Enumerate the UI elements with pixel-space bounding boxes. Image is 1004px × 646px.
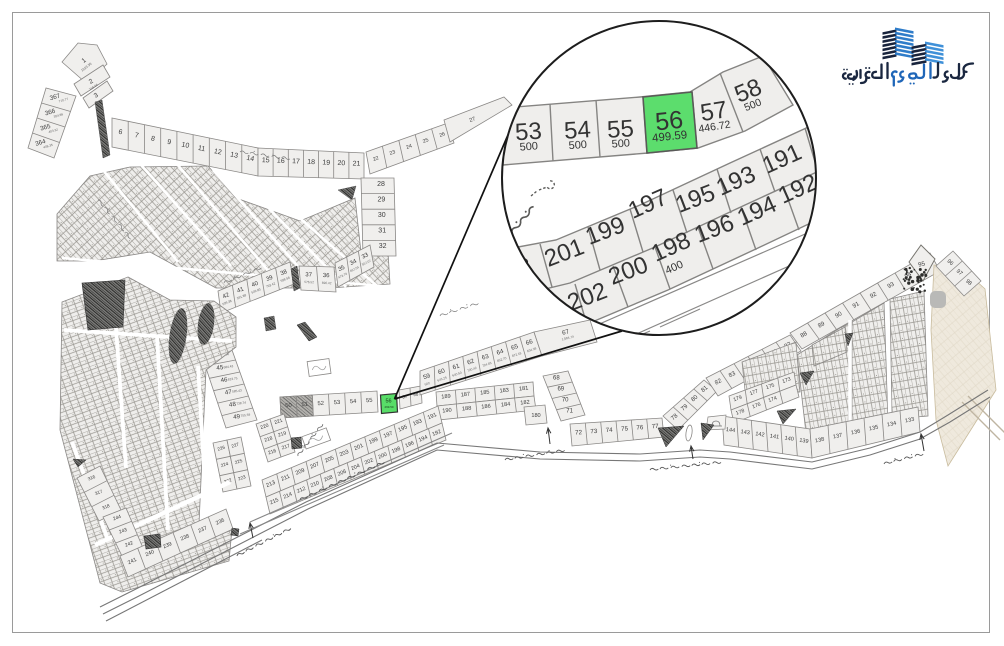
svg-text:28: 28: [377, 181, 385, 188]
svg-text:17: 17: [292, 158, 300, 165]
svg-text:74: 74: [606, 427, 614, 435]
svg-text:72: 72: [575, 429, 583, 437]
svg-text:56: 56: [385, 399, 391, 405]
svg-text:73: 73: [590, 428, 598, 436]
svg-text:696.42: 696.42: [322, 281, 332, 285]
svg-text:11: 11: [197, 145, 206, 153]
svg-text:20: 20: [337, 160, 345, 167]
svg-text:55: 55: [366, 398, 373, 404]
svg-text:19: 19: [322, 159, 330, 166]
svg-text:69: 69: [557, 387, 564, 393]
svg-text:184: 184: [501, 402, 511, 409]
svg-text:189: 189: [441, 394, 451, 401]
svg-text:143: 143: [740, 429, 750, 436]
svg-text:32: 32: [379, 243, 387, 250]
svg-text:186: 186: [481, 404, 491, 411]
svg-text:54: 54: [350, 399, 358, 405]
svg-text:188: 188: [462, 406, 472, 413]
svg-text:53: 53: [334, 400, 341, 406]
svg-text:50: 50: [285, 403, 292, 409]
svg-text:75: 75: [621, 425, 629, 433]
svg-text:15: 15: [262, 157, 270, 164]
svg-text:70: 70: [562, 398, 569, 404]
svg-text:500: 500: [568, 139, 587, 152]
svg-text:576.52: 576.52: [304, 280, 314, 284]
svg-text:185: 185: [480, 390, 490, 397]
svg-text:139: 139: [799, 438, 809, 445]
svg-text:181: 181: [519, 386, 529, 393]
svg-text:500: 500: [611, 137, 630, 150]
svg-text:76: 76: [636, 424, 644, 432]
svg-text:142: 142: [755, 431, 765, 438]
svg-text:31: 31: [378, 228, 386, 235]
svg-text:144: 144: [725, 427, 735, 434]
svg-text:187: 187: [461, 392, 471, 399]
svg-text:500: 500: [519, 140, 538, 153]
svg-text:183: 183: [499, 388, 509, 395]
svg-text:18: 18: [307, 159, 315, 166]
svg-text:71: 71: [566, 409, 573, 415]
svg-text:36: 36: [323, 273, 331, 279]
svg-text:30: 30: [378, 212, 386, 219]
svg-text:180: 180: [531, 413, 540, 419]
svg-text:141: 141: [769, 433, 779, 440]
svg-text:190: 190: [442, 408, 452, 415]
svg-text:21: 21: [352, 161, 360, 168]
svg-text:499.59: 499.59: [384, 405, 394, 409]
svg-text:182: 182: [520, 400, 530, 407]
svg-text:16: 16: [277, 158, 285, 165]
svg-text:68: 68: [553, 375, 560, 381]
svg-text:140: 140: [784, 436, 794, 443]
svg-text:51: 51: [301, 402, 308, 408]
svg-text:52: 52: [317, 401, 324, 407]
svg-text:37: 37: [305, 272, 313, 278]
svg-text:29: 29: [378, 196, 386, 203]
